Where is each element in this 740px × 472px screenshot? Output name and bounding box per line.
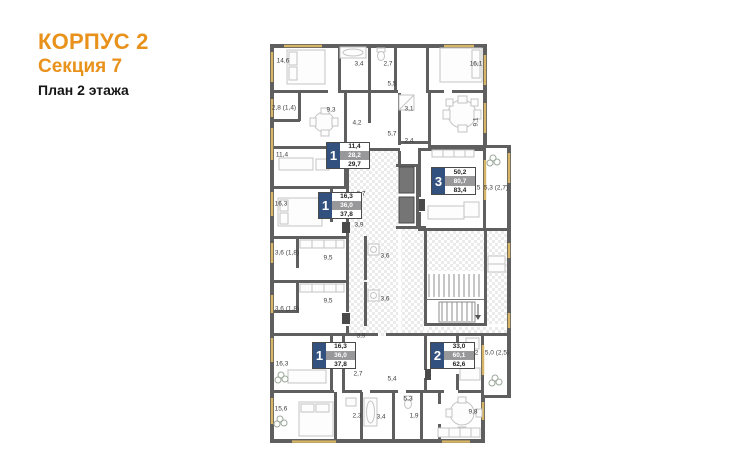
bed xyxy=(299,402,333,436)
washing-machine xyxy=(368,290,379,301)
room-area-label: 3,6 xyxy=(380,253,389,260)
room-area-label: 2,7 xyxy=(353,371,362,378)
living-area-value: 33,0 xyxy=(444,343,474,352)
living-area-value: 16,3 xyxy=(332,193,361,202)
apartment-number: 2 xyxy=(431,343,444,368)
room-area-label: 3,1 xyxy=(404,106,413,113)
room-area-label: 3,4 xyxy=(376,414,385,421)
apartment-info-box: 1 16,3 36,0 37,8 xyxy=(312,342,356,369)
total-area-value: 62,6 xyxy=(444,360,474,368)
floor-plan: 1 11,4 28,2 29,7 1 16,3 36,0 37,8 3 50,2… xyxy=(0,0,740,472)
room-area-label: 5,5 xyxy=(387,81,396,88)
apartment-number: 3 xyxy=(432,168,445,194)
area-value: 36,0 xyxy=(326,352,355,361)
area-value: 60,1 xyxy=(444,352,474,361)
elevator-icon xyxy=(399,167,414,223)
living-area-value: 11,4 xyxy=(340,143,369,152)
kitchen-counter xyxy=(300,240,344,248)
sofa xyxy=(288,370,326,383)
total-area-value: 83,4 xyxy=(445,186,475,194)
room-area-label: 14,6 xyxy=(277,58,290,65)
total-area-value: 29,7 xyxy=(340,160,369,168)
room-area-label: 5,4 xyxy=(387,376,396,383)
bed xyxy=(287,50,325,84)
apartment-info-box: 2 33,0 60,1 62,6 xyxy=(430,342,475,369)
area-value: 36,0 xyxy=(332,202,361,211)
room-area-label: 16,3 xyxy=(276,361,289,368)
area-value: 28,2 xyxy=(340,152,369,161)
room-area-label: 9,5 xyxy=(323,255,332,262)
room-area-label: 5,3 (2,7) xyxy=(484,185,508,192)
toilet xyxy=(377,48,385,61)
room-area-label: 4,2 xyxy=(352,120,361,127)
room-area-label: 1,9 xyxy=(409,413,418,420)
room-area-label: 9,8 xyxy=(468,409,477,416)
living-area-value: 50,2 xyxy=(445,168,475,177)
room-area-label: 15,6 xyxy=(275,406,288,413)
room-area-label: 5,0 (2,5) xyxy=(485,350,509,357)
sofa xyxy=(428,202,479,219)
bathtub xyxy=(364,398,377,426)
room-area-label: 3,9 xyxy=(356,333,365,340)
room-area-label: 3,4 xyxy=(354,61,363,68)
bathtub xyxy=(340,47,366,58)
apartment-number: 1 xyxy=(313,343,326,368)
sink xyxy=(346,398,356,406)
storage-box xyxy=(488,256,505,272)
room-area-label: 9,3 xyxy=(326,107,335,114)
dining-table xyxy=(443,96,481,132)
room-area-label: 9,5 xyxy=(323,298,332,305)
apartment-info-box: 3 50,2 80,7 83,4 xyxy=(431,167,476,195)
room-area-label: 9,1 xyxy=(473,117,480,126)
apartment-number: 1 xyxy=(319,193,332,218)
room-area-label: 3,6 (1,8) xyxy=(275,250,299,257)
kitchen-counter xyxy=(438,428,480,437)
stairs-icon xyxy=(426,274,484,322)
total-area-value: 37,8 xyxy=(332,210,361,218)
room-area-label: 2,3 xyxy=(352,413,361,420)
washing-machine xyxy=(368,244,379,255)
room-area-label: 16,3 xyxy=(275,201,288,208)
room-area-label: 3,6 xyxy=(380,296,389,303)
floor-plan-drawing xyxy=(0,0,740,472)
apartment-info-box: 1 16,3 36,0 37,8 xyxy=(318,192,362,219)
kitchen-counter xyxy=(432,150,474,157)
apartment-info-box: 1 11,4 28,2 29,7 xyxy=(326,142,370,169)
room-area-label: 2,8 (1,4) xyxy=(272,105,296,112)
sofa xyxy=(279,158,329,170)
room-area-label: 2,7 xyxy=(383,61,392,68)
kitchen-counter xyxy=(300,284,344,292)
living-area-value: 16,3 xyxy=(326,343,355,352)
room-area-label: 2,4 xyxy=(404,138,413,145)
room-area-label: 11,4 xyxy=(276,152,288,159)
apartment-number: 1 xyxy=(327,143,340,168)
room-area-label: 5,7 xyxy=(387,131,396,138)
room-area-label: 3,6 (1,8) xyxy=(275,306,299,313)
total-area-value: 37,8 xyxy=(326,360,355,368)
area-value: 80,7 xyxy=(445,177,475,186)
room-area-label: 16,1 xyxy=(470,61,483,68)
room-area-label: 3,9 xyxy=(354,222,363,229)
room-area-label: 5,3 xyxy=(403,396,412,403)
